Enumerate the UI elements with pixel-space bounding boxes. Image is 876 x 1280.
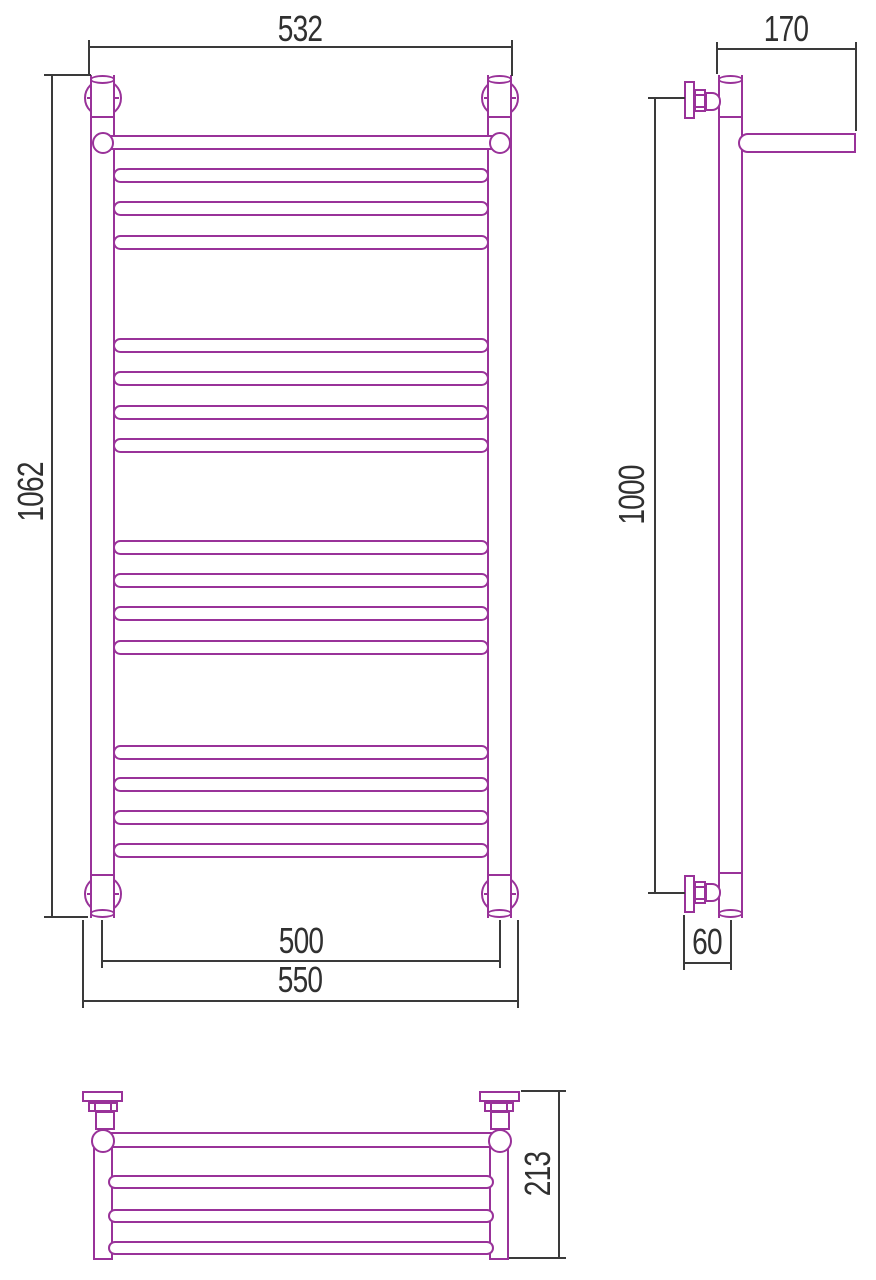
dim-label-front-outer-width: 550 [278,962,323,998]
dimension-line [716,48,857,50]
dim-label-front-height: 1062 [13,462,49,521]
dim-label-side-depth: 170 [764,11,809,47]
dim-label-side-axis-offset: 60 [692,924,722,960]
dim-label-front-top-width: 532 [278,11,323,47]
dim-label-side-height: 1000 [614,465,650,524]
dim-label-plan-depth: 213 [520,1152,556,1197]
dimension-layer: 532 1062 500 550 170 1000 60 213 [0,0,876,1280]
dimension-line [716,42,718,74]
dim-label-front-inner-width: 500 [279,923,324,959]
dimension-line [517,920,519,1008]
dimension-line [855,42,857,131]
drawing-canvas: 532 1062 500 550 170 1000 60 213 [0,0,876,1280]
dimension-line [683,962,732,964]
dimension-line [101,960,501,962]
dimension-line [82,920,84,1008]
dimension-line [648,892,685,894]
dimension-line [82,1000,519,1002]
dimension-line [88,46,513,48]
dimension-line [51,75,53,917]
dimension-line [558,1091,560,1258]
dimension-line [654,98,656,892]
